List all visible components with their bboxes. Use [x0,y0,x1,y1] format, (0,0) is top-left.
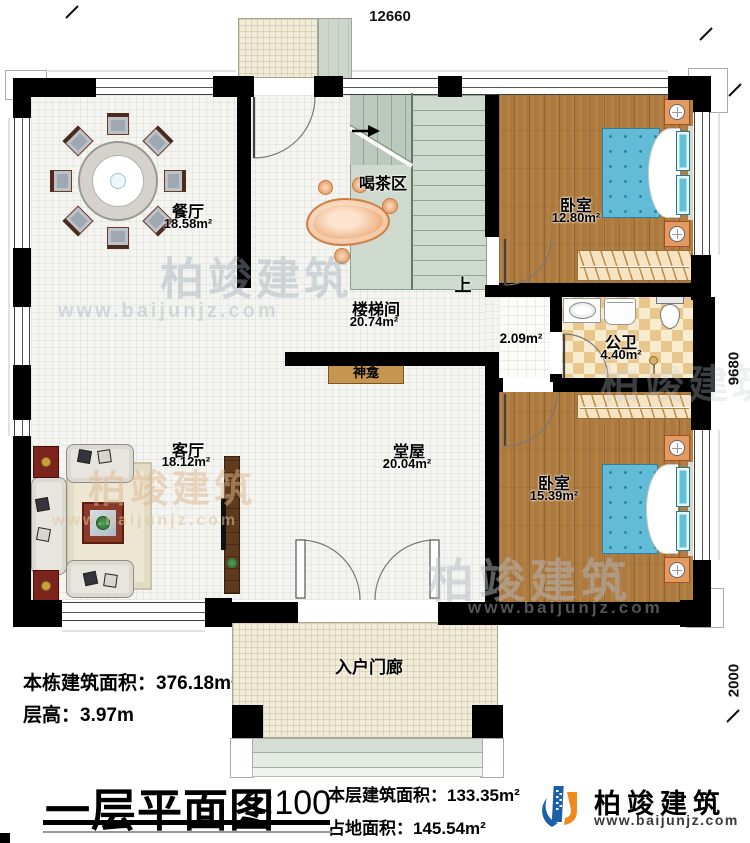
stair-arrow-head [368,125,380,137]
floor-plan-sheet: 神龛 [0,0,750,843]
room-area-bedroom-bottom: 15.39m² [530,488,578,503]
room-area-dining: 18.58m² [164,216,212,231]
room-label-tea-area: 喝茶区 [359,170,407,194]
room-area-stairwell: 20.74m² [350,314,398,329]
dimension-ticks [66,6,741,722]
room-area-living: 18.12m² [162,454,210,469]
room-area-bedroom-top: 12.80m² [552,210,600,225]
room-label-porch: 入户门廊 [335,653,403,678]
door-leaves [254,97,564,446]
dimension-right-lower: 2000 [726,641,743,721]
door-leaf [296,540,305,598]
title-underline [43,820,330,825]
dimension-right-upper: 9680 [726,329,743,409]
plan-linework [0,0,750,843]
brand-logo-icon [538,780,588,832]
room-area-nook: 2.09m² [500,331,543,346]
room-area-bathroom: 4.40m² [600,347,641,362]
stairs-up-label: 上 [455,271,472,296]
stair-break-line [350,128,412,166]
title-underline-thin [43,831,332,833]
door-leaf [430,540,439,598]
sheet-corner-mark [0,833,10,843]
door-swing-arcs [254,97,608,600]
dimension-top: 12660 [360,8,420,25]
brand-logo [538,780,588,837]
logo-j-shape [564,792,577,825]
room-area-hall: 20.04m² [383,456,431,471]
